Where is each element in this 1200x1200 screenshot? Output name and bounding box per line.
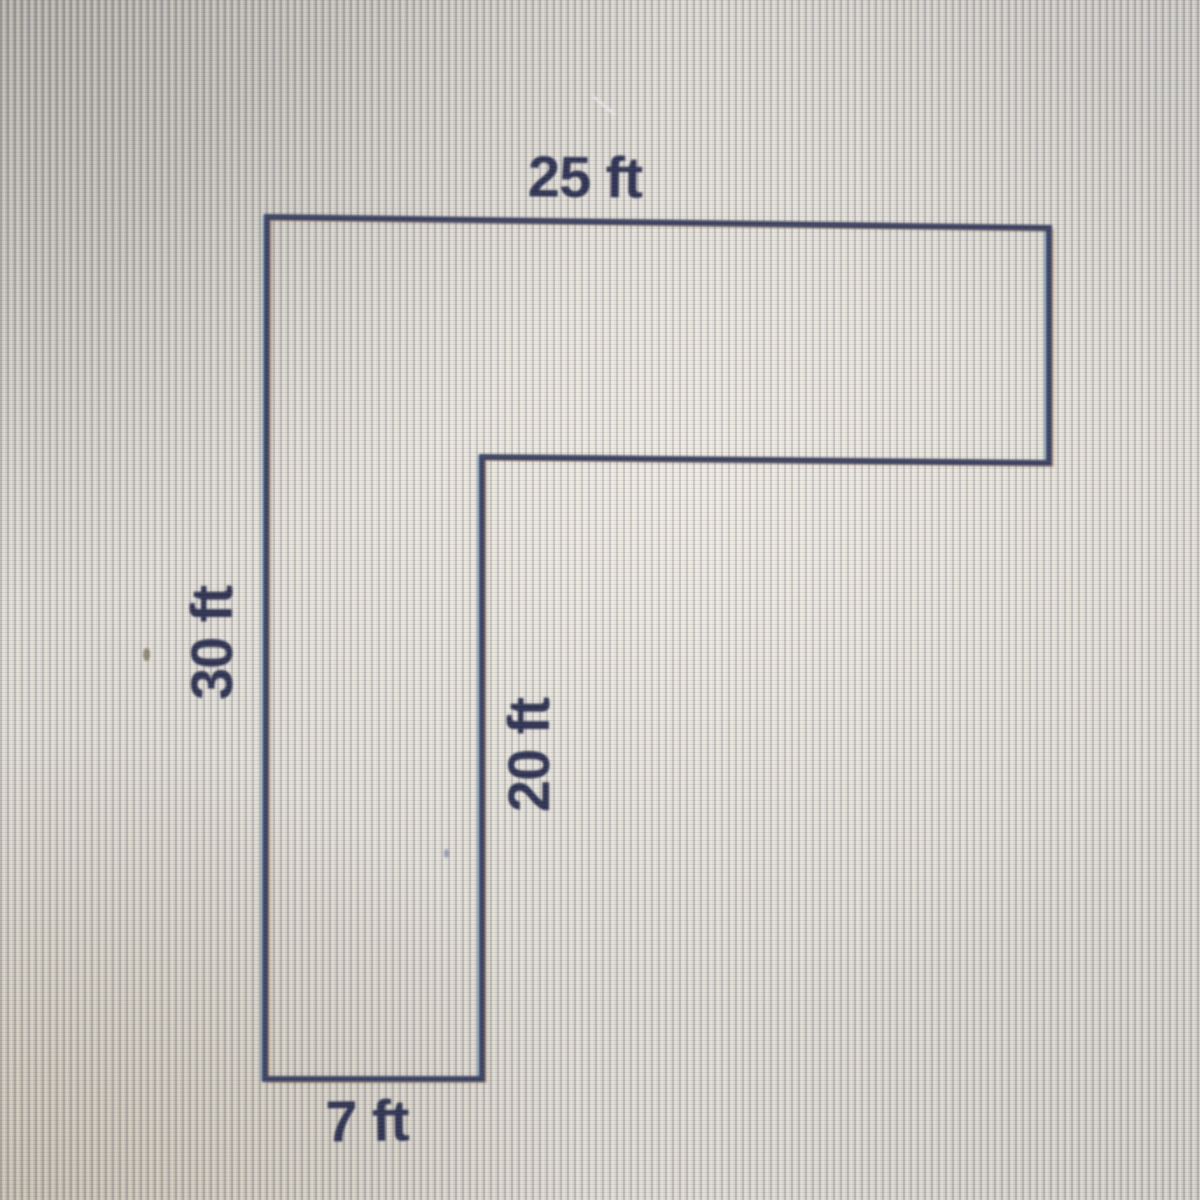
outline-fringe-orange bbox=[269, 220, 1053, 1082]
dust-speck bbox=[143, 648, 150, 661]
dimension-label-left: 30 ft bbox=[184, 586, 242, 700]
dimension-label-inner-vertical: 20 ft bbox=[501, 698, 559, 812]
dimension-label-bottom: 7 ft bbox=[325, 1092, 409, 1151]
outline-fringe-cyan bbox=[262, 217, 1046, 1079]
screen-photo: 25 ft 30 ft 20 ft 7 ft bbox=[0, 0, 1200, 1200]
geometry-figure: 25 ft 30 ft 20 ft 7 ft bbox=[0, 0, 1200, 1200]
outline-main bbox=[265, 217, 1049, 1079]
dimension-label-top: 25 ft bbox=[528, 148, 643, 207]
dust-speck bbox=[444, 849, 449, 858]
